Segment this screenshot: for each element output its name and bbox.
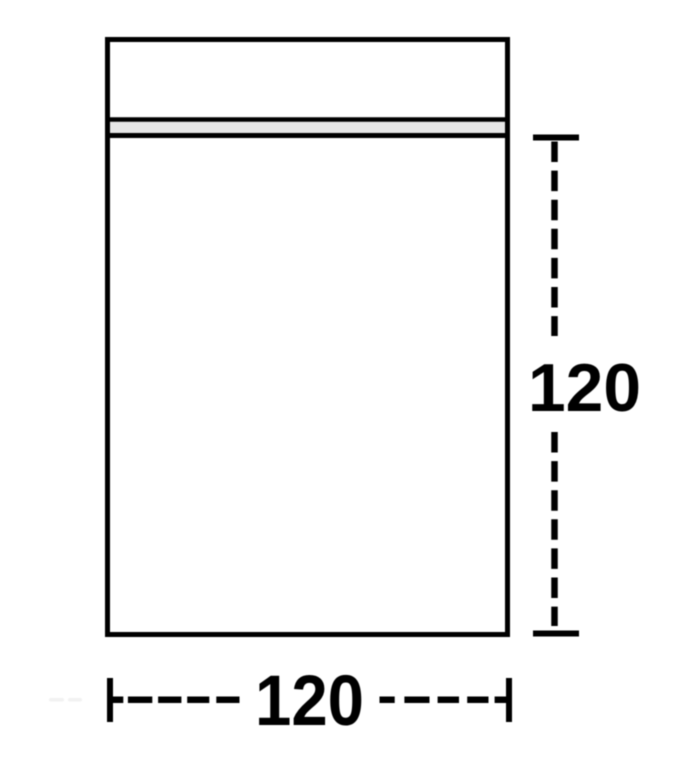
svg-text:120: 120 xyxy=(255,662,364,741)
svg-text:120: 120 xyxy=(528,350,641,426)
